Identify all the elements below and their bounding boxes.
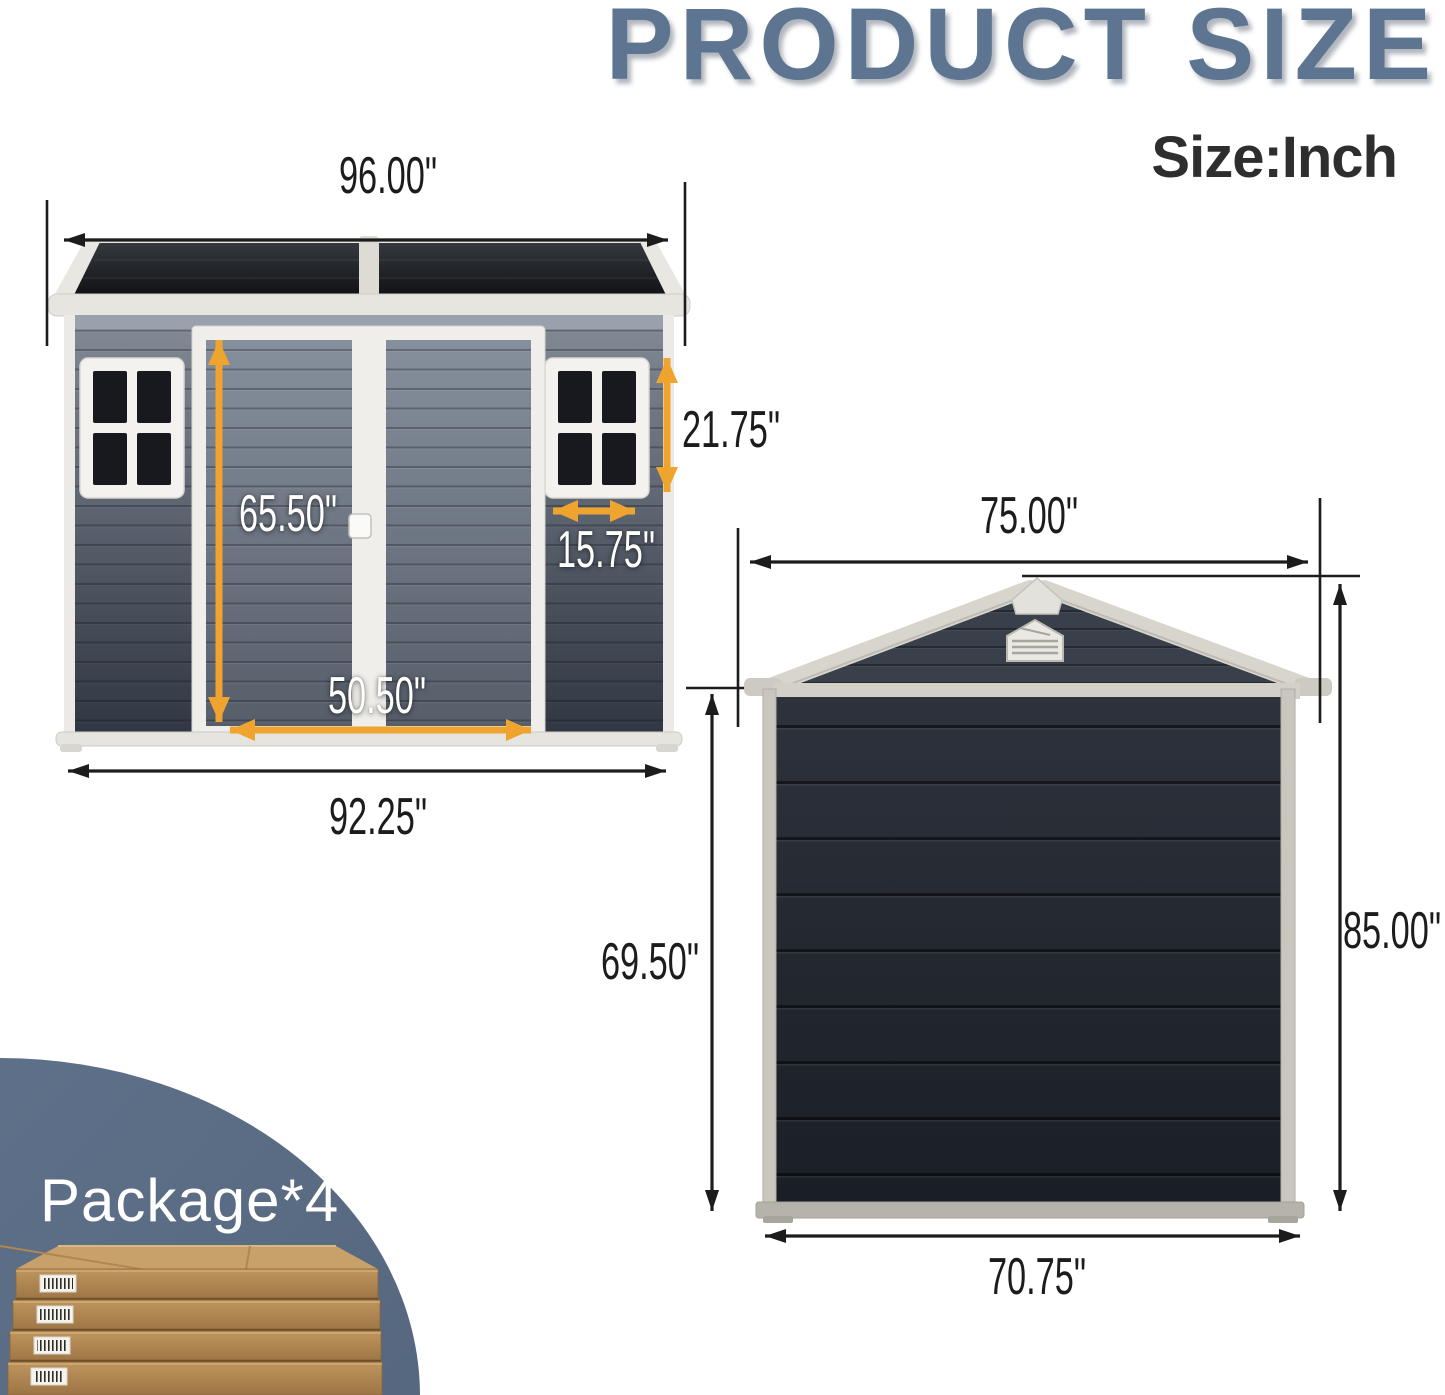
back-roof-width-label: 75.00" — [980, 486, 1078, 546]
front-roof — [48, 236, 690, 316]
package-label: Package*4 — [40, 1166, 339, 1235]
front-base-sill — [56, 732, 682, 752]
front-window-width-label: 15.75" — [557, 520, 655, 580]
front-door-height-label: 65.50" — [239, 484, 337, 544]
front-base-width-label: 92.25" — [329, 787, 427, 847]
product-size-infographic: PRODUCT SIZE Size:Inch 96.00" 21.75" 65.… — [0, 0, 1445, 1395]
package-box-2 — [13, 1300, 380, 1331]
front-window-height-label: 21.75" — [682, 400, 780, 460]
front-door-width-label: 50.50" — [328, 666, 426, 726]
front-roof-width-label: 96.00" — [339, 146, 437, 206]
front-left-window — [80, 358, 184, 498]
door-handle — [349, 514, 371, 538]
page-title: PRODUCT SIZE — [606, 0, 1437, 103]
unit-label: Size:Inch — [1151, 124, 1397, 191]
back-walls — [763, 683, 1300, 1204]
package-box-3 — [10, 1331, 381, 1362]
package-box-1 — [16, 1269, 378, 1300]
front-right-window — [545, 358, 649, 498]
back-base-sill — [756, 1202, 1304, 1223]
back-wall-height-label: 69.50" — [601, 932, 699, 992]
shed-back-view — [744, 578, 1332, 1223]
back-total-height-label: 85.00" — [1343, 901, 1441, 961]
back-base-width-label: 70.75" — [988, 1247, 1086, 1307]
package-stack — [0, 1246, 382, 1395]
package-box-4 — [8, 1362, 382, 1395]
